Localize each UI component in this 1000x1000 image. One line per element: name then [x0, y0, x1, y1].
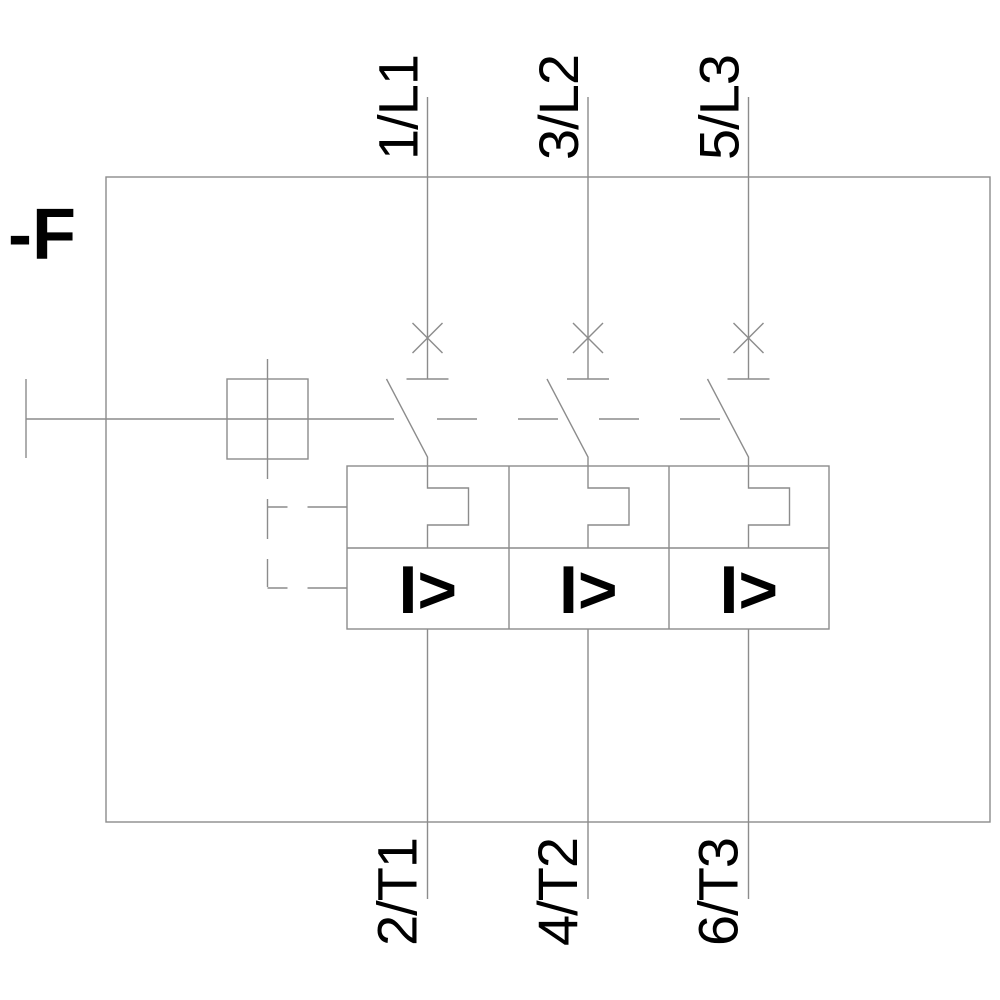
breaker-schematic: -F 1/L1 2/T1 I> 3/L2 4/T2 I> — [0, 0, 1000, 1000]
pole-3-contact-blade — [708, 379, 749, 466]
mechanical-linkages — [268, 419, 728, 588]
actuator-mechanism — [26, 359, 394, 479]
pole-2-bottom-terminal-label: 4/T2 — [526, 838, 589, 946]
pole-1: 1/L1 2/T1 I> — [366, 55, 469, 946]
pole-1-contact-blade — [387, 379, 428, 466]
pole-1-bottom-terminal-label: 2/T1 — [366, 838, 429, 946]
pole-2: 3/L2 4/T2 I> — [526, 55, 629, 946]
pole-1-magnetic-trip-label: I> — [399, 552, 458, 628]
pole-1-top-terminal-label: 1/L1 — [367, 55, 430, 160]
pole-3-thermal-overload-symbol — [749, 466, 790, 548]
pole-3: 5/L3 6/T3 I> — [687, 55, 790, 946]
pole-2-magnetic-trip-label: I> — [559, 552, 618, 628]
pole-3-magnetic-trip-label: I> — [720, 552, 779, 628]
enclosure-outline — [106, 177, 990, 822]
pole-2-contact-blade — [547, 379, 588, 466]
device-tag-label: -F — [8, 195, 76, 275]
schematic-page: -F 1/L1 2/T1 I> 3/L2 4/T2 I> — [0, 0, 1000, 1000]
pole-3-top-terminal-label: 5/L3 — [688, 55, 751, 160]
pole-2-top-terminal-label: 3/L2 — [527, 55, 590, 160]
pole-1-thermal-overload-symbol — [428, 466, 469, 548]
pole-2-thermal-overload-symbol — [588, 466, 629, 548]
pole-3-bottom-terminal-label: 6/T3 — [687, 838, 750, 946]
